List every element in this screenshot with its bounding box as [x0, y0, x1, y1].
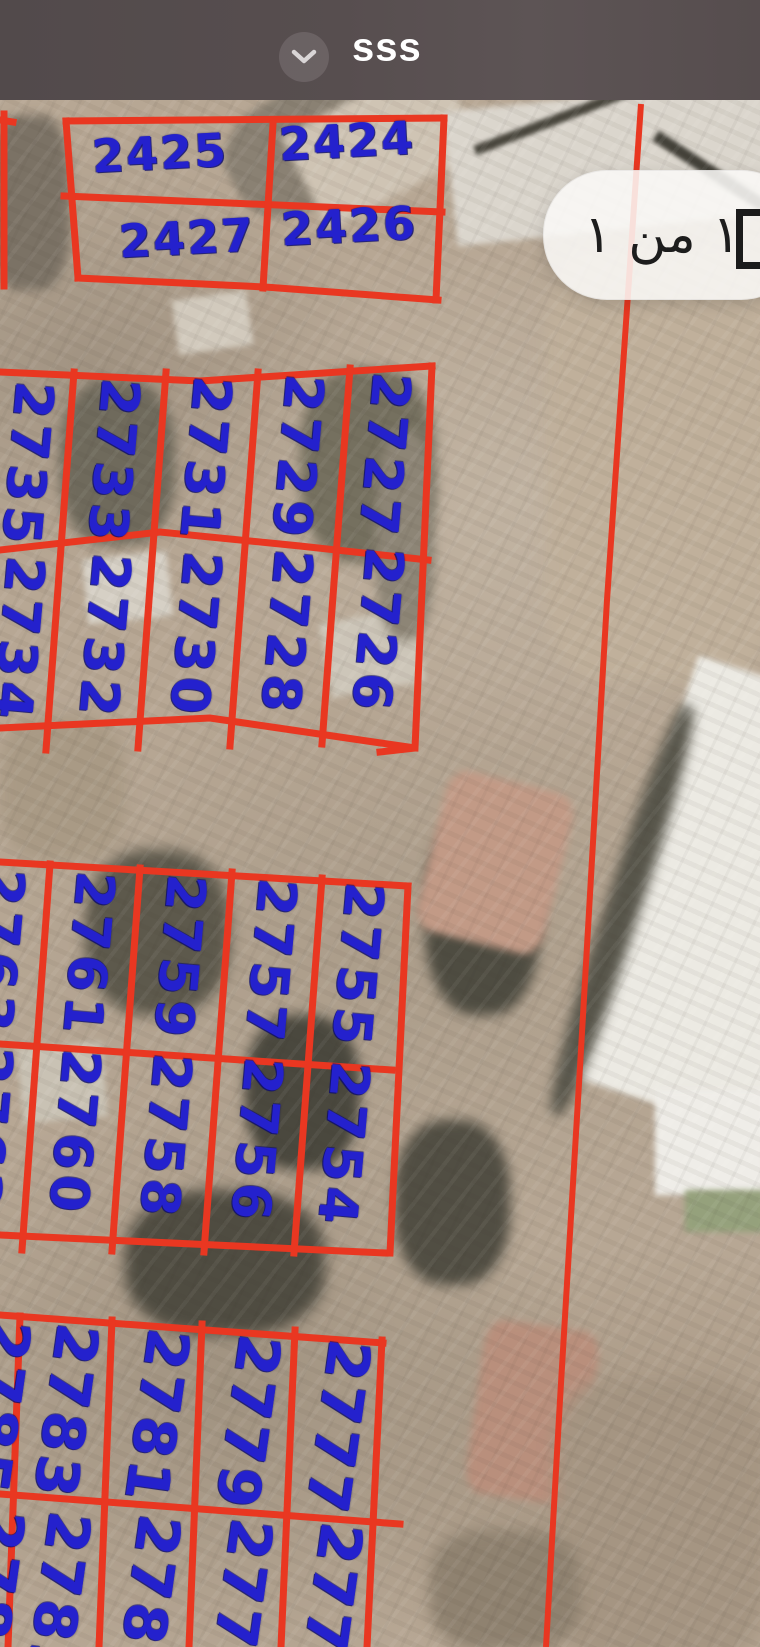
app-screen: 2425 2424 2427 2426 2735 2733 2731 2729 … [0, 0, 760, 1647]
plot-label: 2424 [278, 110, 417, 171]
page-indicator-badge: ١ من ١ [543, 170, 760, 300]
collapse-sheet-button[interactable] [279, 32, 329, 82]
cut-off-glyph [736, 209, 760, 269]
plot-label: 2427 [118, 207, 257, 268]
sheet-title: sss [352, 26, 422, 71]
plot-label: 2426 [280, 195, 419, 256]
long-boundary-line [546, 104, 641, 1647]
page-indicator-text: ١ من ١ [584, 205, 740, 265]
plot-label: 2425 [91, 122, 230, 183]
chevron-down-icon [291, 49, 317, 65]
sheet-header: sss [0, 0, 760, 100]
